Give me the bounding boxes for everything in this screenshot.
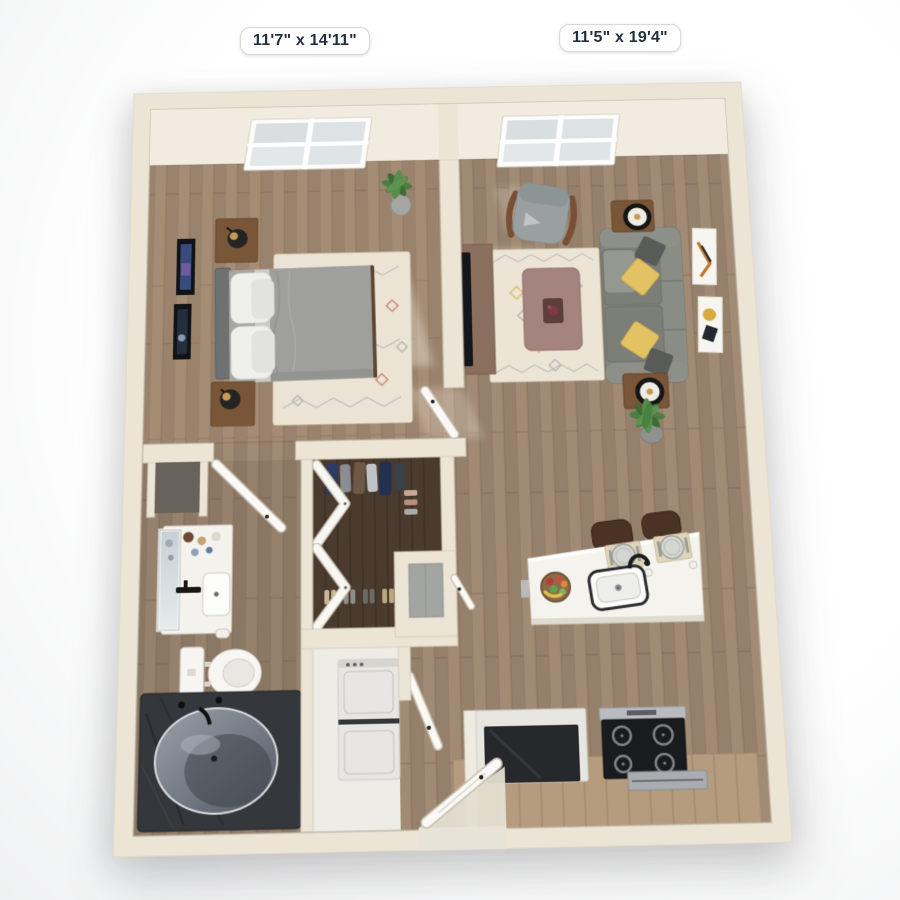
entry-doorway — [419, 826, 507, 851]
wall-art — [173, 304, 192, 360]
duvet — [269, 265, 373, 381]
pillow-small — [252, 330, 276, 373]
living-window — [497, 114, 620, 167]
fruit-bowl — [541, 572, 571, 602]
living-room-dimensions-label: 11'5" x 19'4" — [559, 24, 681, 52]
vanity — [158, 525, 233, 634]
wall-laundry-stub — [398, 647, 410, 701]
wall-bedroom-bottom — [142, 443, 213, 463]
wall-art — [698, 297, 722, 353]
wall-art — [176, 239, 195, 296]
pillow-small — [251, 279, 275, 320]
sofa — [599, 227, 688, 383]
floor-plan-3d — [113, 82, 793, 858]
table-lamp — [637, 380, 663, 404]
linen-niche-wall — [147, 463, 156, 518]
soaking-tub — [137, 690, 301, 831]
linen-niche-wall — [199, 462, 207, 517]
linen-niche-interior — [155, 462, 201, 514]
coffee-table — [522, 268, 582, 351]
place-setting — [653, 532, 692, 563]
island-bracket — [521, 580, 529, 598]
wall-art — [692, 228, 716, 285]
stacked-washer-dryer — [338, 659, 400, 781]
north-wall-face — [150, 99, 728, 166]
wall-closet-east — [440, 456, 455, 558]
bedroom-dimensions-label: 11'7" x 14'11" — [240, 27, 370, 55]
bed — [215, 263, 377, 384]
toilet-paper-holder — [216, 629, 230, 638]
floor-plan-scene: 11'7" x 14'11" 11'5" x 19'4" — [0, 0, 900, 900]
bedroom-window — [244, 117, 372, 170]
soap-dispenser — [689, 561, 697, 569]
vanity-faucet — [176, 587, 201, 593]
table-lamp — [625, 205, 650, 228]
